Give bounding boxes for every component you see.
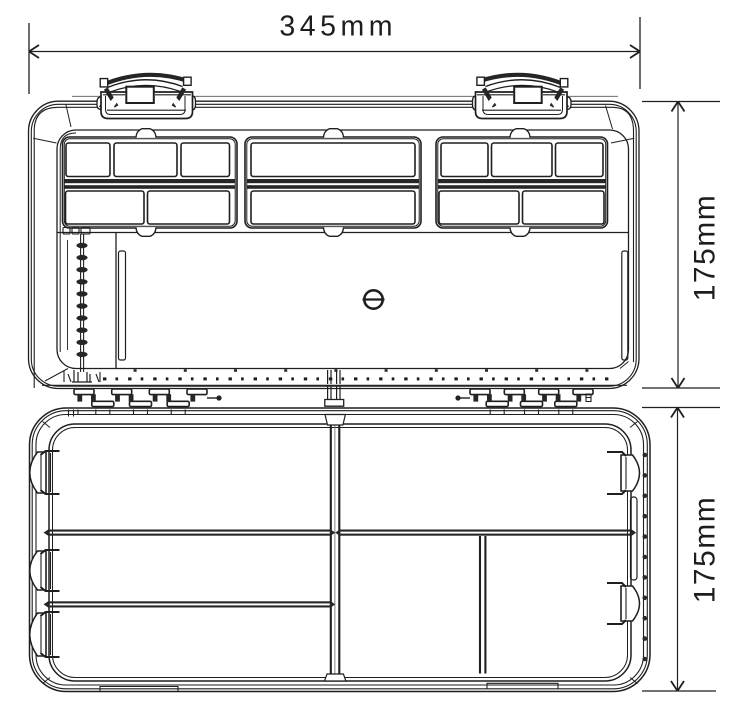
svg-text:345mm: 345mm xyxy=(279,11,397,43)
svg-text:175mm: 175mm xyxy=(689,194,722,302)
svg-text:175mm: 175mm xyxy=(689,496,722,604)
